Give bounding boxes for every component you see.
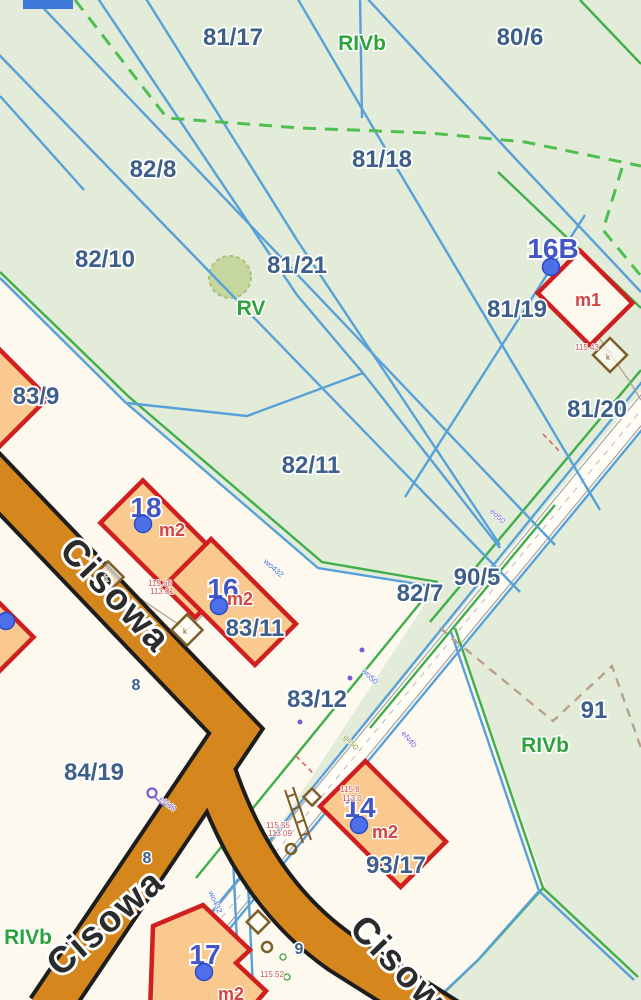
land-use-label-m2: m2 bbox=[218, 984, 244, 1000]
parcel-label-81-17: 81/17 bbox=[203, 24, 263, 51]
address-point-marker[interactable] bbox=[135, 516, 152, 533]
annotation-113.0: 113.0 bbox=[342, 794, 362, 803]
cadastral-map-canvas[interactable]: CisowaCisowaCisowa 81/1780/682/881/1882/… bbox=[0, 0, 641, 1000]
parcel-label-90-5: 90/5 bbox=[454, 564, 501, 591]
parcel-label-93-17: 93/17 bbox=[366, 852, 426, 879]
soil-label-RIVb: RIVb bbox=[4, 926, 52, 949]
address-point-marker[interactable] bbox=[196, 964, 213, 981]
annotation-115.8: 115.8 bbox=[340, 785, 360, 794]
annotation-115.52: 115.52 bbox=[260, 970, 284, 979]
partial-toolbar-fragment[interactable] bbox=[23, 0, 73, 9]
parcel-label-81-21: 81/21 bbox=[267, 252, 327, 279]
parcel-label-82-7: 82/7 bbox=[397, 580, 444, 607]
land-use-label-m2: m2 bbox=[372, 822, 398, 842]
parcel-label-83-12: 83/12 bbox=[287, 686, 347, 713]
parcel-label-91: 91 bbox=[581, 697, 608, 724]
address-point-marker[interactable] bbox=[543, 259, 560, 276]
map-viewport[interactable]: CisowaCisowaCisowa 81/1780/682/881/1882/… bbox=[0, 0, 641, 1000]
parcel-label-81-20: 81/20 bbox=[567, 396, 627, 423]
annotation-115.43: 115.43 bbox=[575, 343, 599, 352]
parcel-label-81-19: 81/19 bbox=[487, 296, 547, 323]
parcel-label-80-6: 80/6 bbox=[497, 24, 544, 51]
address-label-8: 8 bbox=[143, 850, 152, 867]
soil-label-RIVb: RIVb bbox=[338, 32, 386, 55]
parcel-label-83-9: 83/9 bbox=[13, 383, 60, 410]
parcel-label-82-11: 82/11 bbox=[282, 452, 341, 479]
address-label-9: 9 bbox=[295, 941, 304, 958]
land-use-label-m2: m2 bbox=[159, 520, 185, 540]
address-point-marker[interactable] bbox=[351, 817, 368, 834]
parcel-label-81-18: 81/18 bbox=[352, 146, 412, 173]
parcel-label-82-10: 82/10 bbox=[75, 246, 135, 273]
annotation-113.01: 113.01 bbox=[150, 587, 174, 596]
parcel-label-83-11: 83/11 bbox=[226, 615, 285, 642]
soil-label-RV: RV bbox=[237, 297, 266, 320]
land-use-label-m1: m1 bbox=[575, 290, 601, 310]
soil-label-RIVb: RIVb bbox=[521, 734, 569, 757]
annotation-113.09: 113.09 bbox=[268, 829, 292, 838]
parcel-label-82-8: 82/8 bbox=[130, 156, 177, 183]
address-label-8: 8 bbox=[132, 677, 141, 694]
address-point-marker[interactable] bbox=[211, 598, 228, 615]
address-point-marker[interactable] bbox=[0, 613, 15, 630]
land-use-label-m2: m2 bbox=[227, 589, 253, 609]
parcel-label-84-19: 84/19 bbox=[64, 759, 124, 786]
